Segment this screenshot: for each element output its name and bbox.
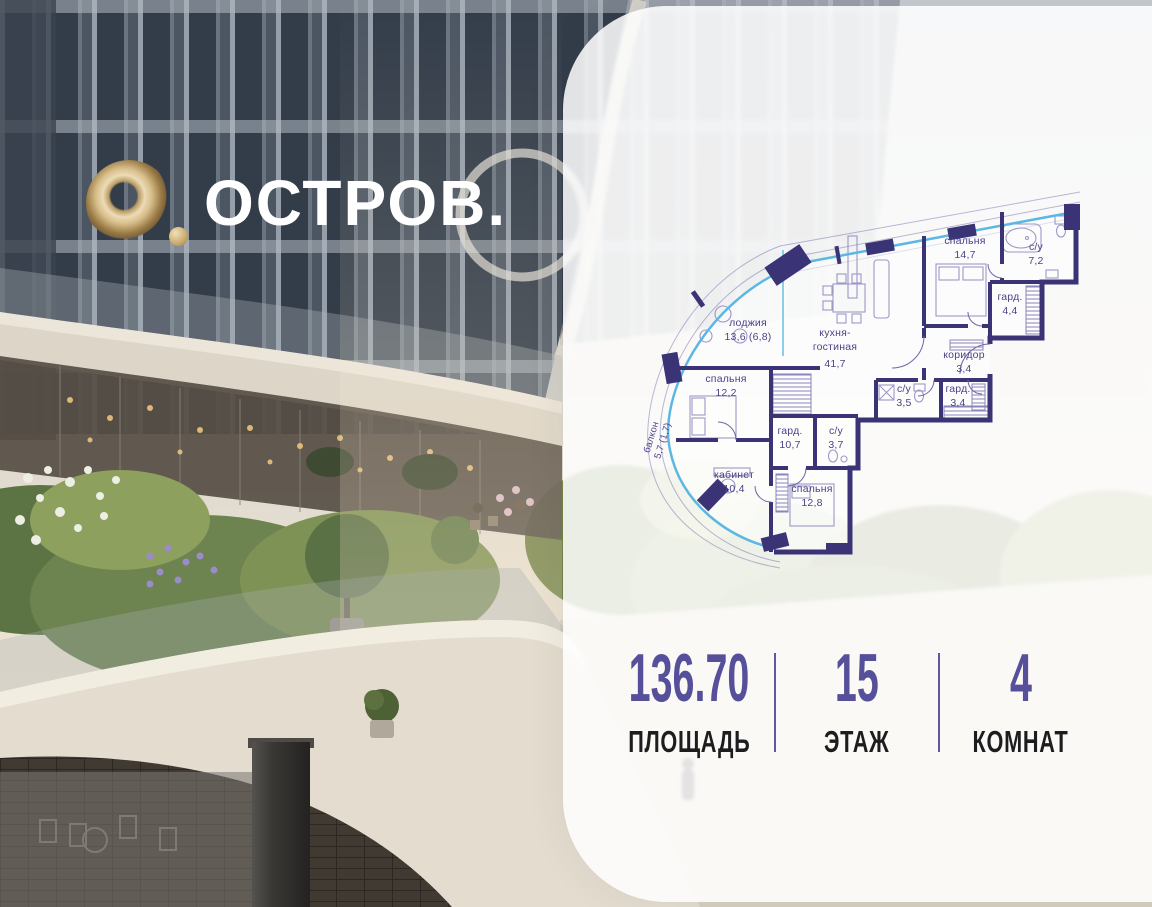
stat-rooms: 4 КОМНАТ: [940, 644, 1102, 760]
stat-area: 136.70 ПЛОЩАДЬ: [604, 644, 774, 760]
stats-bar: 136.70 ПЛОЩАДЬ 15 ЭТАЖ 4 КОМНАТ: [604, 644, 1104, 760]
stat-area-value: 136.70: [629, 644, 750, 712]
stat-floor-label: ЭТАЖ: [824, 724, 889, 760]
brand-name: ОСТРОВ.: [204, 160, 507, 246]
logo-torus-icon: [86, 160, 172, 246]
stat-floor-value: 15: [835, 644, 879, 712]
column: [252, 742, 310, 907]
stat-rooms-value: 4: [1010, 644, 1032, 712]
gold-dot-icon: [169, 227, 188, 246]
brand-logo: ОСТРОВ.: [86, 160, 507, 246]
floorplan: спальня14,7 с/у7,2 гард.4,4 коридор3,4 г…: [628, 186, 1098, 571]
room-label: балкон5,7 (1,7): [641, 418, 674, 460]
page: ОСТРОВ.: [0, 0, 1152, 907]
stat-floor: 15 ЭТАЖ: [776, 644, 938, 760]
stat-rooms-label: КОМНАТ: [973, 724, 1069, 760]
stat-area-label: ПЛОЩАДЬ: [628, 724, 750, 760]
gold-ring-icon: [86, 160, 172, 246]
